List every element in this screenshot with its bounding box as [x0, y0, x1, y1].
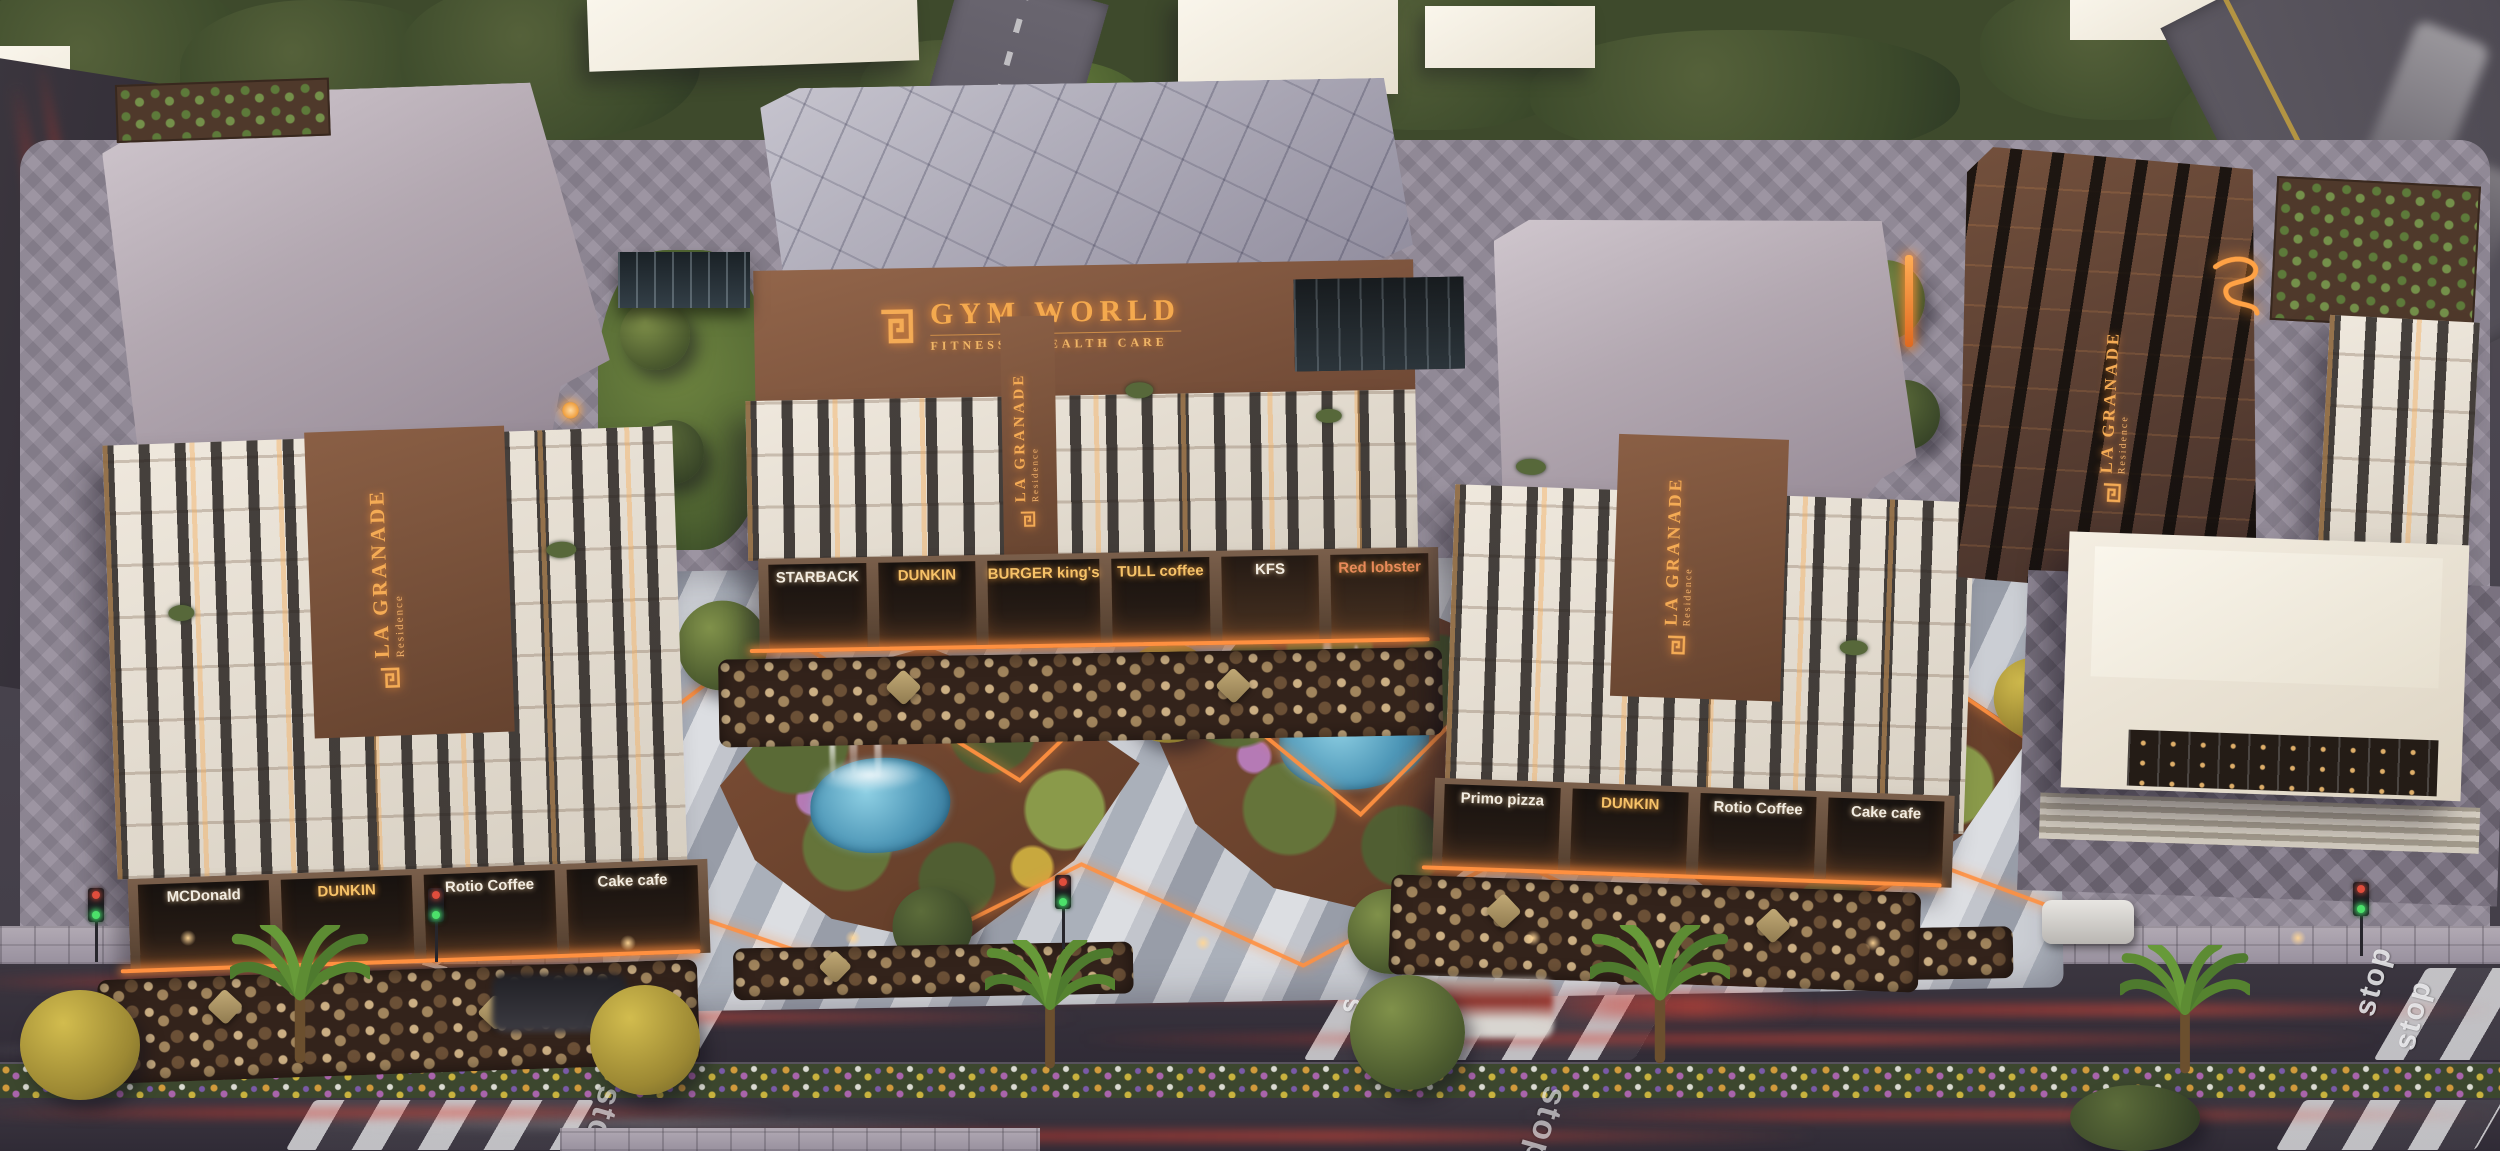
lamp-glow: [620, 935, 636, 951]
shop-sign-dunkin: DUNKIN: [1570, 789, 1689, 879]
green-light: [1059, 898, 1067, 906]
sign-text: LA GRANADE Residence: [1660, 456, 1698, 627]
hall-roof: [2091, 546, 2443, 688]
lamp-glow: [1195, 935, 1211, 951]
lamp-glow: [180, 930, 196, 946]
shop-sign-kfs: KFS: [1221, 555, 1320, 645]
sign-text: LA GRANADE Residence: [363, 457, 407, 658]
shop-label: Cake cafe: [1849, 803, 1922, 886]
shop-sign-primo-pizza: Primo pizza: [1442, 784, 1561, 874]
shop-sign-burger-kings: BURGER king's: [987, 559, 1100, 649]
background-building: [1425, 6, 1595, 68]
green-light: [432, 911, 440, 919]
red-light: [2357, 885, 2365, 893]
gym-sign-text: GYM WORLD FITNESS & HEALTH CARE: [930, 293, 1182, 353]
shop-label: Rotio Coffee: [445, 876, 537, 962]
crosswalk: [2276, 1100, 2500, 1150]
gym-world-logo-icon: [874, 304, 919, 349]
shop-sign-cake-cafe: Cake cafe: [1826, 797, 1945, 887]
traffic-light-pole: [1062, 905, 1065, 949]
light-trail: [0, 1108, 790, 1118]
la-granade-logo-icon: [1663, 633, 1688, 658]
storefront-row-left: MCDonald DUNKIN Rotio Coffee Cake cafe: [128, 859, 711, 973]
traffic-light-icon: [428, 888, 444, 922]
illuminated-sign-strip: [1905, 255, 1913, 347]
hall-glass-facade: [2127, 730, 2439, 797]
tree: [2070, 1085, 2200, 1151]
building-left: LA GRANADE Residence MCDonald DUNKIN Rot…: [30, 67, 712, 1019]
palm-tree-icon: [230, 925, 370, 1065]
green-light: [2357, 905, 2365, 913]
light-trail: [1520, 1110, 2500, 1120]
lamp-glow: [1865, 935, 1881, 951]
traffic-light-icon: [1055, 875, 1071, 909]
upper-facade: GYM WORLD FITNESS & HEALTH CARE: [753, 259, 1415, 406]
traffic-light-pole: [435, 918, 438, 962]
sign-wall: LA GRANADE Residence: [1610, 434, 1789, 702]
green-light: [92, 911, 100, 919]
traffic-light-pole: [2360, 912, 2363, 956]
paneled-roof: [760, 77, 1413, 278]
tree: [20, 990, 140, 1100]
shop-label: Rotio Coffee: [1711, 798, 1803, 882]
outdoor-cafe-seating: [718, 647, 1443, 748]
rooftop-garden-terrace: [2270, 176, 2481, 330]
shop-sign-rotio-coffee: Rotio Coffee: [1698, 793, 1817, 883]
la-granade-logo-icon: [1017, 509, 1037, 529]
tree: [590, 985, 700, 1095]
building-center: GYM WORLD FITNESS & HEALTH CARE LA GRANA…: [690, 76, 1481, 750]
shop-sign-tull-coffee: TULL coffee: [1111, 557, 1210, 647]
traffic-light-icon: [88, 888, 104, 922]
shop-label: DUNKIN: [898, 566, 958, 650]
brand-subtitle: Residence: [1027, 332, 1040, 502]
lamp-glow: [845, 930, 861, 946]
tree: [1350, 975, 1465, 1090]
parked-car: [2042, 900, 2134, 944]
sign-text: LA GRANADE Residence: [1010, 332, 1040, 502]
event-hall: [2017, 520, 2500, 907]
la-granade-vertical-sign: LA GRANADE Residence: [1010, 332, 1040, 529]
la-granade-logo-icon: [376, 664, 403, 691]
hall-building: [2061, 531, 2470, 801]
sign-wall: LA GRANADE Residence: [304, 426, 515, 739]
sidewalk-lower: [560, 1128, 1040, 1151]
aerial-render: stop stop stop stop stop stop stop stop: [0, 0, 2500, 1151]
building-emblem-light: [561, 401, 580, 420]
red-light: [92, 891, 100, 899]
shop-label: KFS: [1255, 561, 1286, 645]
background-building: [587, 0, 919, 72]
lamp-glow: [1525, 930, 1541, 946]
shop-label: STARBACK: [776, 568, 860, 652]
palm-tree-icon: [2120, 945, 2250, 1075]
traffic-light-icon: [2353, 882, 2369, 916]
rooftop-pergola-terrace: [115, 78, 331, 143]
gym-tagline: FITNESS & HEALTH CARE: [930, 330, 1181, 353]
neon-script-sign-icon: [2203, 248, 2271, 323]
shop-label: Primo pizza: [1458, 790, 1544, 874]
shop-sign-starback: STARBACK: [768, 563, 867, 653]
sign-pillar: LA GRANADE Residence: [1000, 316, 1058, 573]
light-trail: [300, 1120, 1000, 1128]
la-granade-vertical-sign: LA GRANADE Residence: [363, 457, 408, 691]
shop-label: BURGER king's: [988, 564, 1101, 649]
gym-name: GYM WORLD: [930, 293, 1182, 331]
storefront-row-center: STARBACK DUNKIN BURGER king's TULL coffe…: [758, 547, 1440, 653]
shop-label: DUNKIN: [1599, 795, 1660, 878]
palm-tree-icon: [1590, 925, 1730, 1065]
la-granade-vertical-sign: LA GRANADE Residence: [1659, 456, 1698, 658]
la-granade-logo-icon: [2098, 480, 2123, 505]
traffic-light-pole: [95, 918, 98, 962]
glass-sky-bridge: [618, 252, 750, 308]
building-right: LA GRANADE Residence Primo pizza DUNKIN …: [1401, 205, 2005, 925]
shop-label: TULL coffee: [1117, 562, 1205, 646]
red-light: [1059, 878, 1067, 886]
shop-sign-dunkin: DUNKIN: [878, 561, 977, 651]
lamp-glow: [2290, 930, 2306, 946]
palm-tree-icon: [985, 940, 1115, 1070]
red-light: [432, 891, 440, 899]
